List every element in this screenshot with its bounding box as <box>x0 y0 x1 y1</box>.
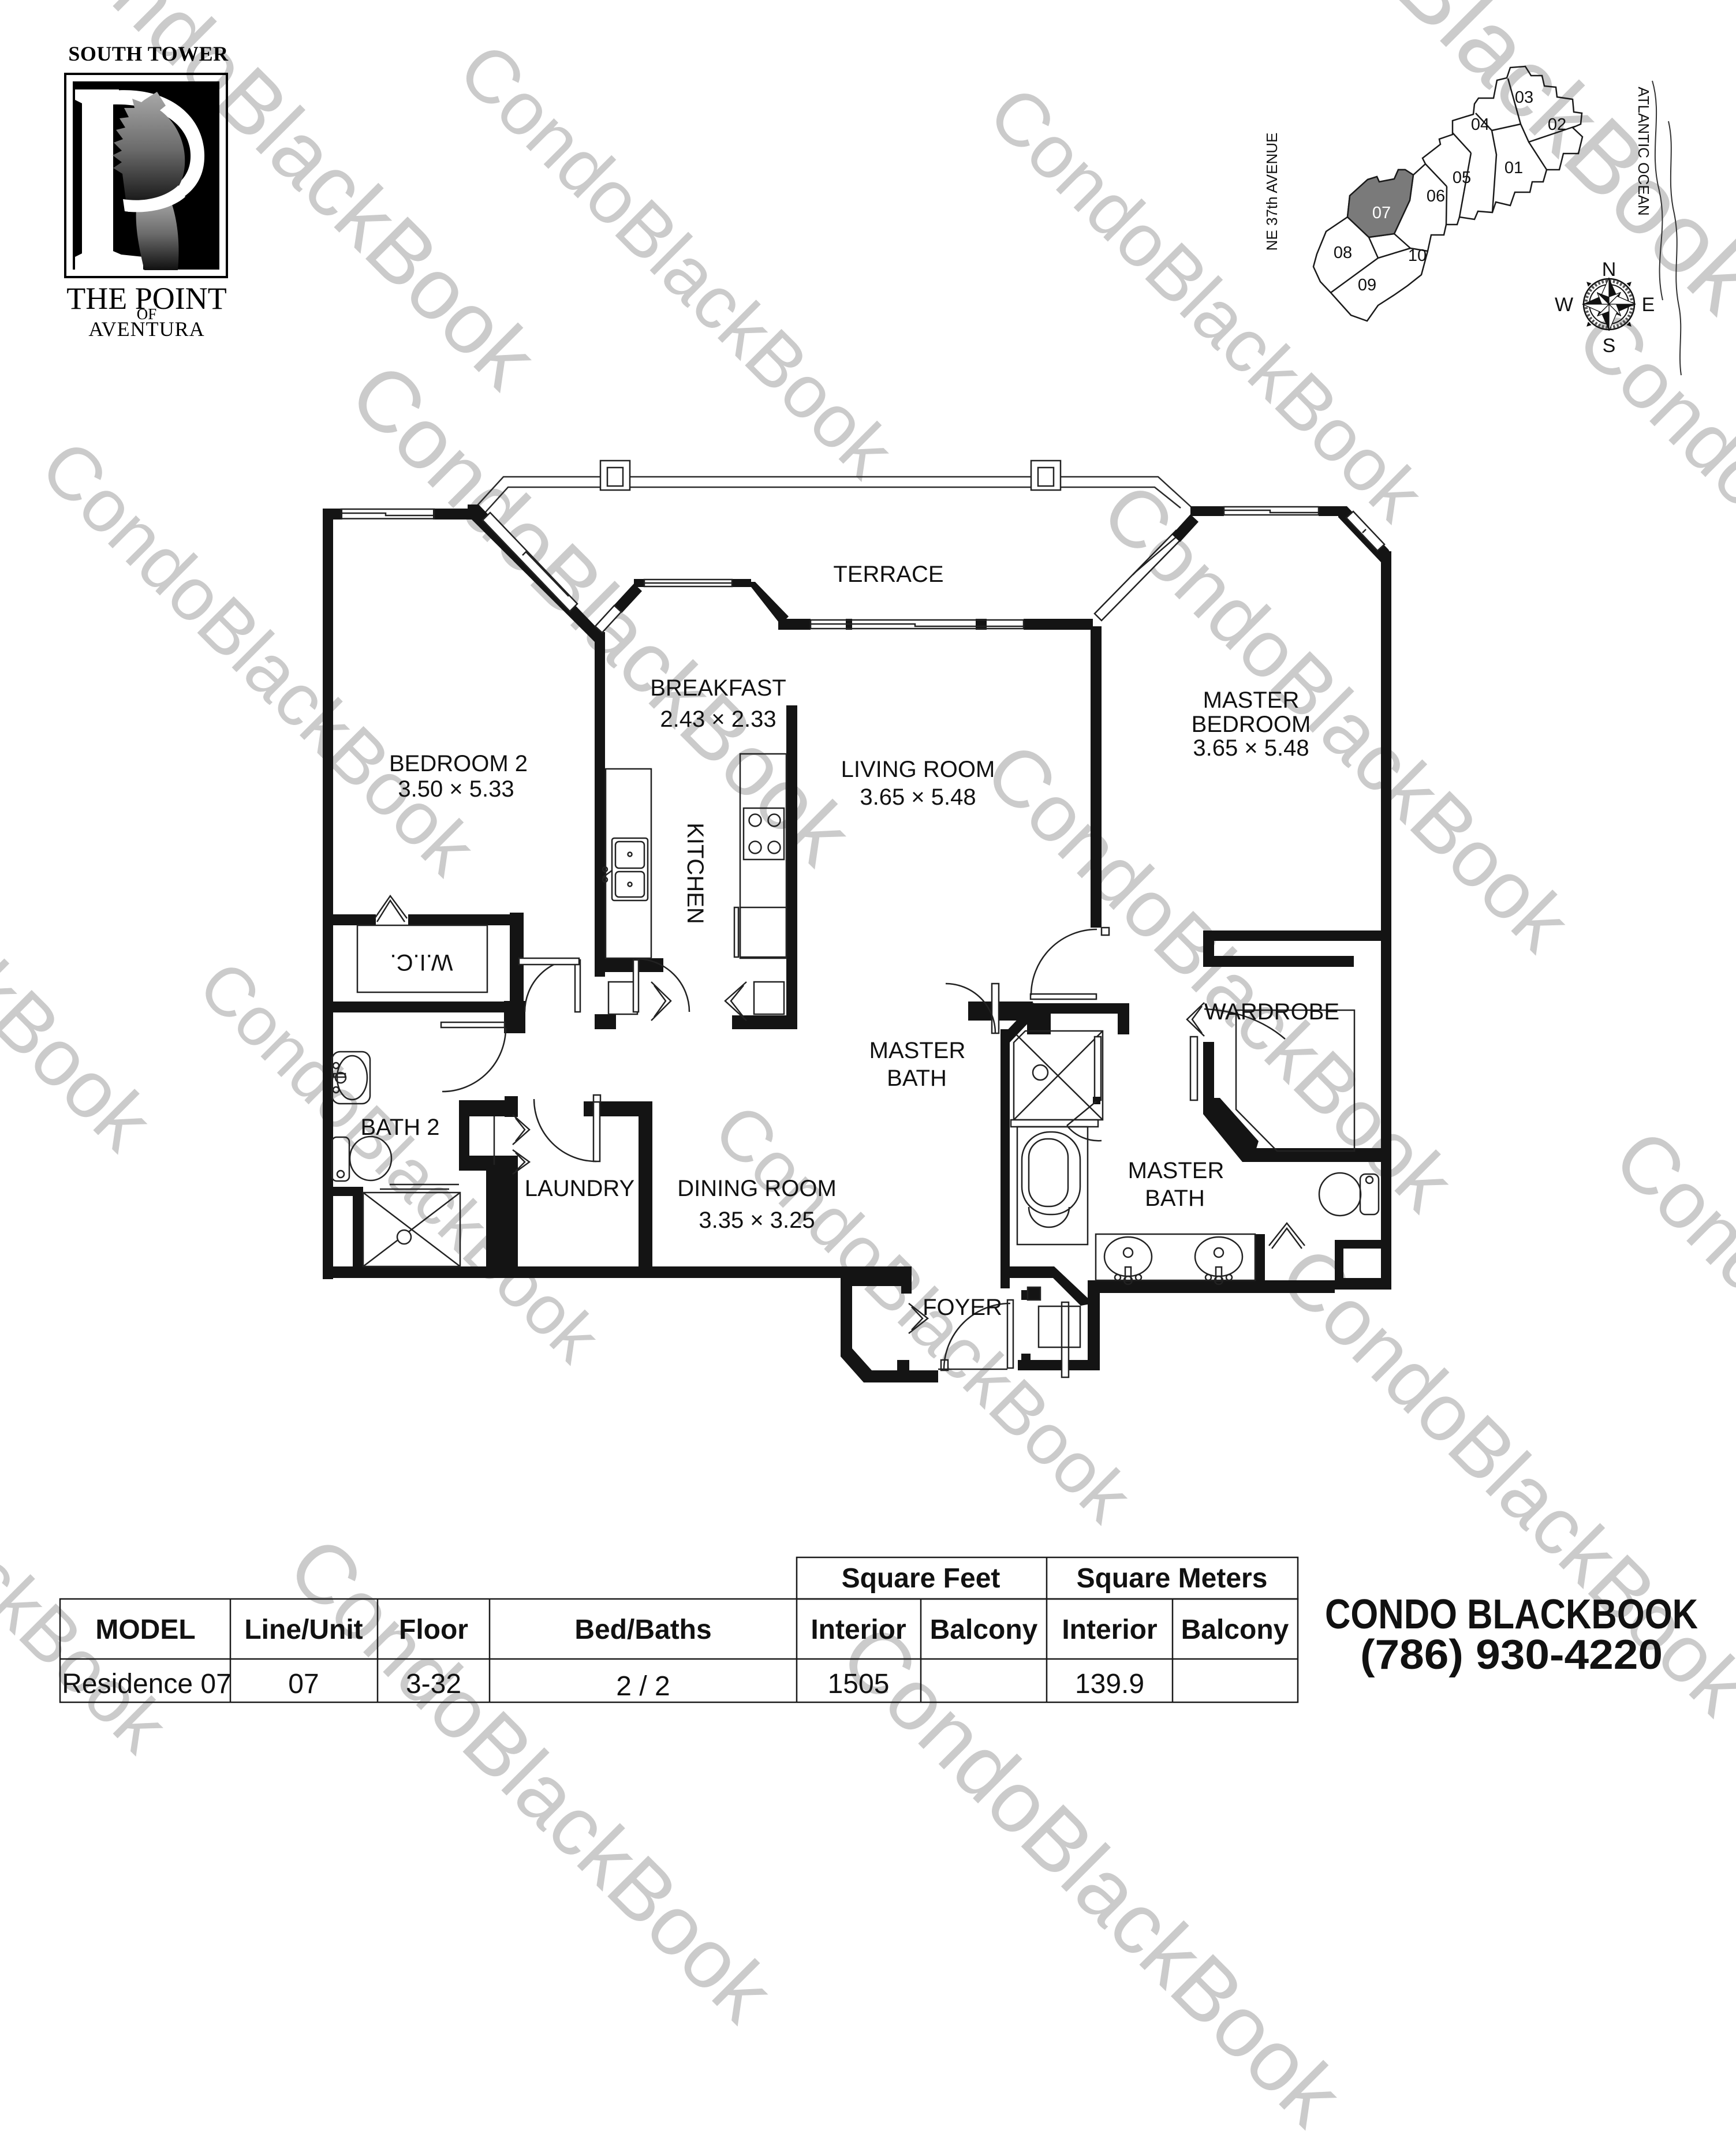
svg-text:3.35 × 3.25: 3.35 × 3.25 <box>699 1208 815 1233</box>
svg-text:BATH 2: BATH 2 <box>360 1115 439 1140</box>
svg-text:MASTER: MASTER <box>869 1038 966 1063</box>
svg-text:S: S <box>1603 335 1616 357</box>
svg-text:Balcony: Balcony <box>930 1615 1038 1645</box>
svg-text:06: 06 <box>1427 187 1445 205</box>
svg-text:139.9: 139.9 <box>1075 1669 1144 1699</box>
svg-text:ATLANTIC OCEAN: ATLANTIC OCEAN <box>1635 87 1652 215</box>
svg-text:MODEL: MODEL <box>95 1615 195 1645</box>
svg-text:BEDROOM 2: BEDROOM 2 <box>389 751 528 776</box>
svg-text:MASTER: MASTER <box>1203 687 1300 713</box>
svg-text:KITCHEN: KITCHEN <box>682 823 708 924</box>
svg-text:01: 01 <box>1504 159 1523 177</box>
svg-text:Square Meters: Square Meters <box>1077 1563 1268 1594</box>
svg-text:Balcony: Balcony <box>1181 1615 1289 1645</box>
svg-text:10: 10 <box>1408 246 1427 265</box>
svg-text:Bed/Baths: Bed/Baths <box>574 1615 711 1645</box>
svg-text:WARDROBE: WARDROBE <box>1204 999 1339 1025</box>
svg-text:2 / 2: 2 / 2 <box>616 1671 670 1702</box>
svg-text:DINING ROOM: DINING ROOM <box>677 1176 837 1201</box>
svg-text:3-32: 3-32 <box>406 1669 461 1699</box>
svg-text:Line/Unit: Line/Unit <box>244 1615 363 1645</box>
svg-text:Interior: Interior <box>1062 1615 1157 1645</box>
svg-text:05: 05 <box>1453 169 1471 187</box>
svg-text:02: 02 <box>1548 115 1566 134</box>
svg-text:3.65 × 5.48: 3.65 × 5.48 <box>1193 735 1309 761</box>
svg-text:Interior: Interior <box>811 1615 906 1645</box>
svg-text:1505: 1505 <box>828 1669 890 1699</box>
svg-text:BREAKFAST: BREAKFAST <box>650 675 786 701</box>
svg-text:Square Feet: Square Feet <box>842 1563 1000 1594</box>
svg-text:3.50 × 5.33: 3.50 × 5.33 <box>398 776 514 802</box>
svg-text:LIVING ROOM: LIVING ROOM <box>841 757 995 782</box>
svg-text:MASTER: MASTER <box>1128 1158 1224 1183</box>
svg-text:CONDO BLACKBOOK: CONDO BLACKBOOK <box>1325 1591 1698 1638</box>
svg-text:NE 37th AVENUE: NE 37th AVENUE <box>1263 133 1280 251</box>
svg-text:(786) 930-4220: (786) 930-4220 <box>1360 1632 1663 1678</box>
svg-text:04: 04 <box>1471 115 1489 134</box>
svg-text:Floor: Floor <box>399 1615 468 1645</box>
svg-text:W: W <box>1555 294 1573 316</box>
svg-text:LAUNDRY: LAUNDRY <box>525 1176 634 1201</box>
svg-text:07: 07 <box>1372 204 1391 222</box>
svg-text:BEDROOM: BEDROOM <box>1192 712 1311 737</box>
svg-text:BATH: BATH <box>887 1066 947 1091</box>
svg-text:W.I.C.: W.I.C. <box>390 950 453 975</box>
svg-text:2.43 × 2.33: 2.43 × 2.33 <box>660 707 776 732</box>
svg-text:Residence 07: Residence 07 <box>62 1669 232 1699</box>
svg-text:FOYER: FOYER <box>923 1295 1002 1320</box>
svg-text:3.65 × 5.48: 3.65 × 5.48 <box>860 784 976 810</box>
svg-text:E: E <box>1642 294 1655 316</box>
svg-text:03: 03 <box>1515 88 1533 107</box>
svg-text:TERRACE: TERRACE <box>833 562 943 587</box>
svg-text:08: 08 <box>1334 244 1352 262</box>
svg-text:BATH: BATH <box>1145 1186 1205 1211</box>
svg-text:07: 07 <box>288 1669 319 1699</box>
svg-text:N: N <box>1602 259 1616 281</box>
svg-text:09: 09 <box>1358 276 1376 294</box>
